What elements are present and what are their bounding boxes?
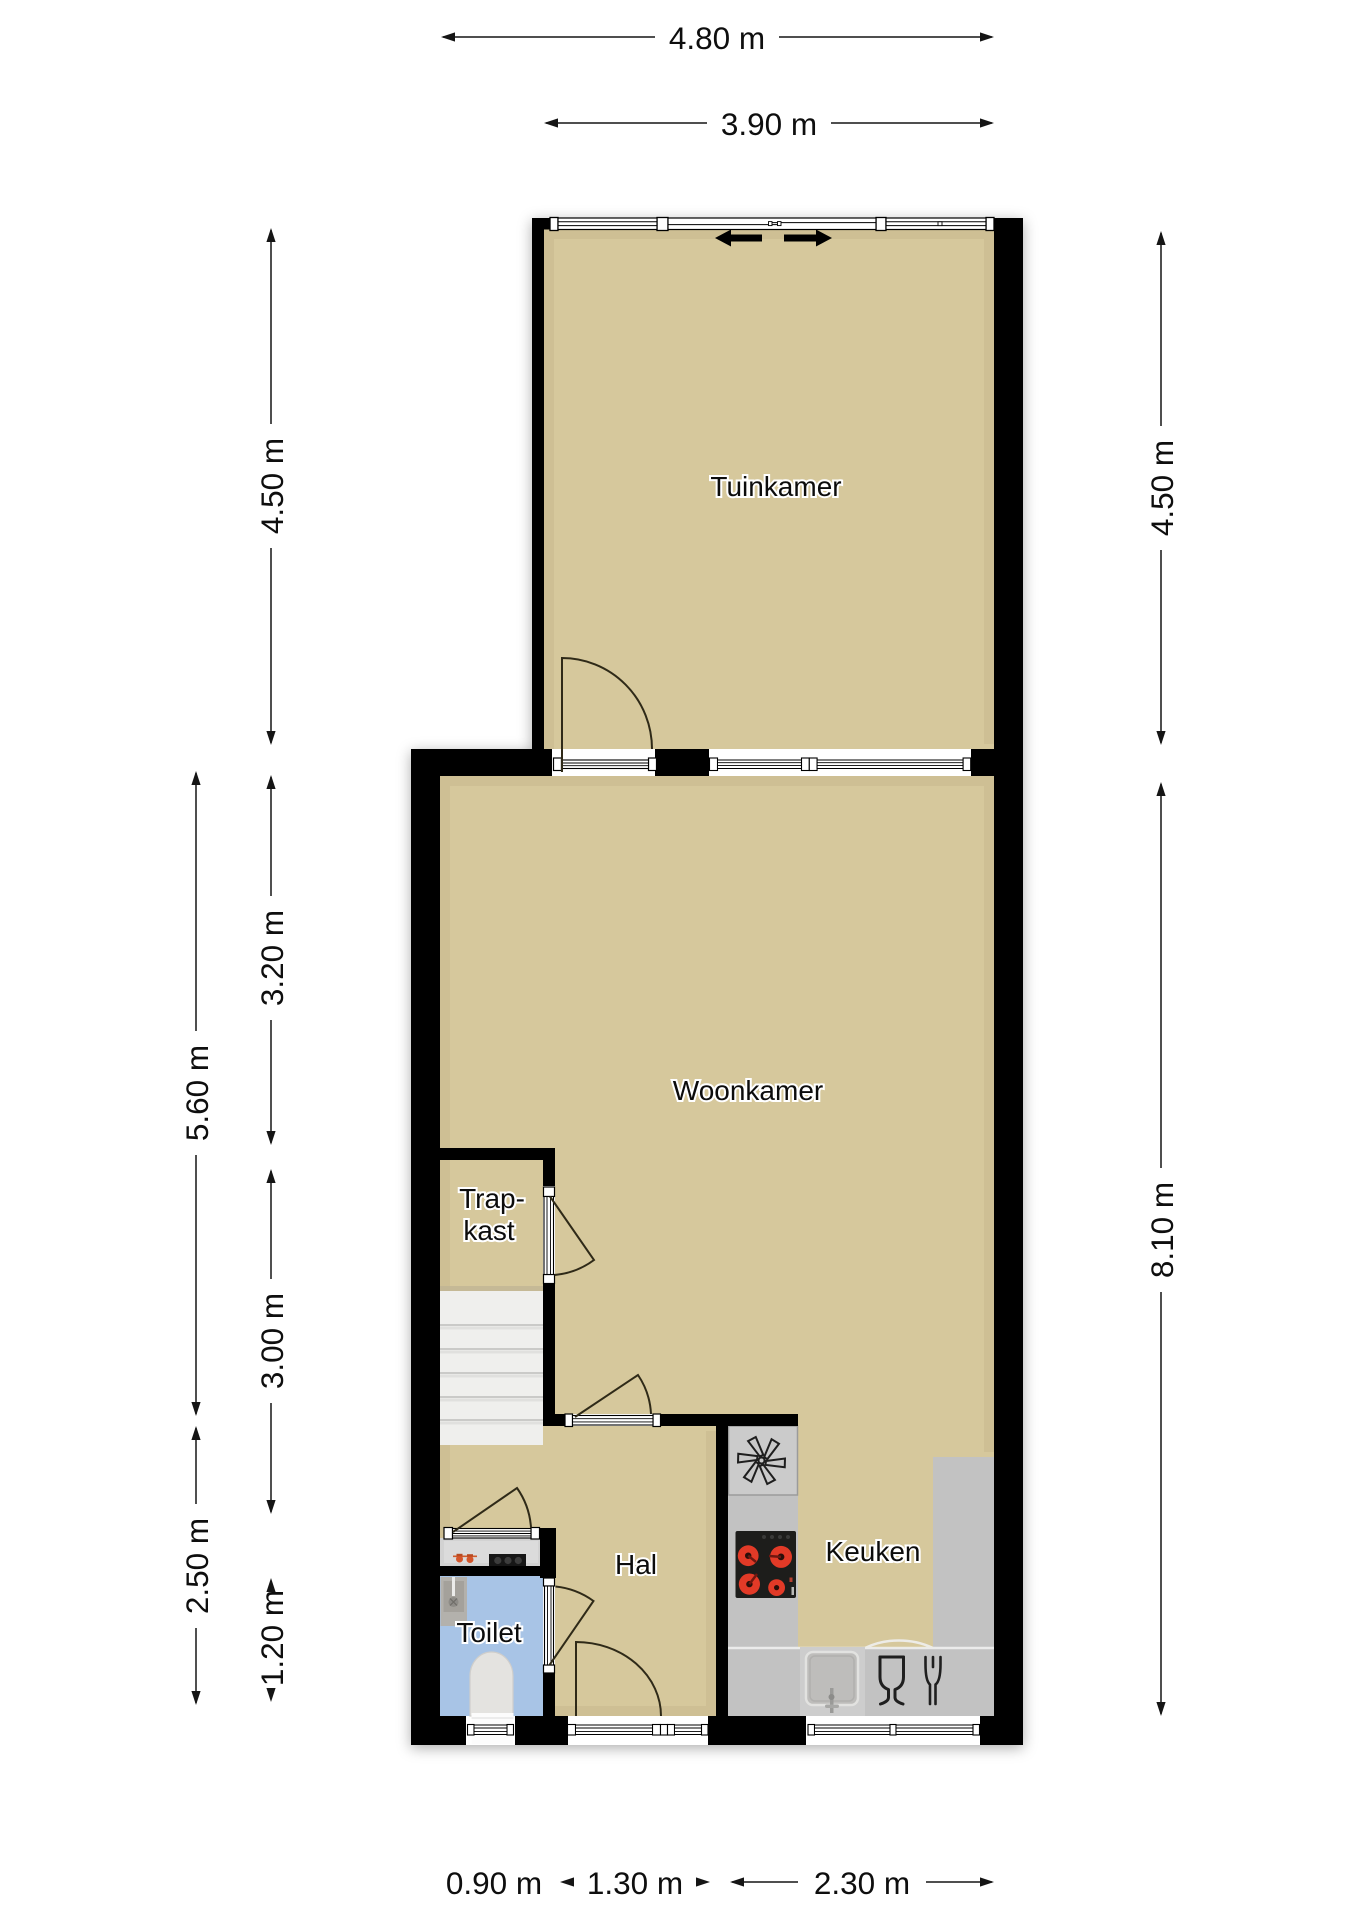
svg-text:Toilet: Toilet bbox=[456, 1617, 522, 1648]
svg-text:1.30 m: 1.30 m bbox=[587, 1865, 683, 1901]
svg-text:3.00 m: 3.00 m bbox=[254, 1293, 290, 1389]
svg-text:4.50 m: 4.50 m bbox=[1144, 440, 1180, 536]
svg-text:Keuken: Keuken bbox=[826, 1536, 921, 1567]
svg-text:Trap-: Trap- bbox=[459, 1183, 525, 1214]
svg-text:Hal: Hal bbox=[615, 1549, 657, 1580]
svg-text:2.50 m: 2.50 m bbox=[179, 1518, 215, 1614]
svg-text:3.90 m: 3.90 m bbox=[721, 106, 817, 142]
svg-text:4.50 m: 4.50 m bbox=[254, 438, 290, 534]
svg-text:8.10 m: 8.10 m bbox=[1144, 1182, 1180, 1278]
svg-text:1.20 m: 1.20 m bbox=[254, 1590, 290, 1686]
svg-text:5.60 m: 5.60 m bbox=[179, 1045, 215, 1141]
svg-text:0.90 m: 0.90 m bbox=[446, 1865, 542, 1901]
svg-text:Woonkamer: Woonkamer bbox=[673, 1075, 823, 1106]
svg-text:2.30 m: 2.30 m bbox=[814, 1865, 910, 1901]
svg-text:kast: kast bbox=[463, 1215, 515, 1246]
svg-text:Tuinkamer: Tuinkamer bbox=[710, 471, 841, 502]
svg-text:3.20 m: 3.20 m bbox=[254, 910, 290, 1006]
svg-text:4.80 m: 4.80 m bbox=[669, 20, 765, 56]
